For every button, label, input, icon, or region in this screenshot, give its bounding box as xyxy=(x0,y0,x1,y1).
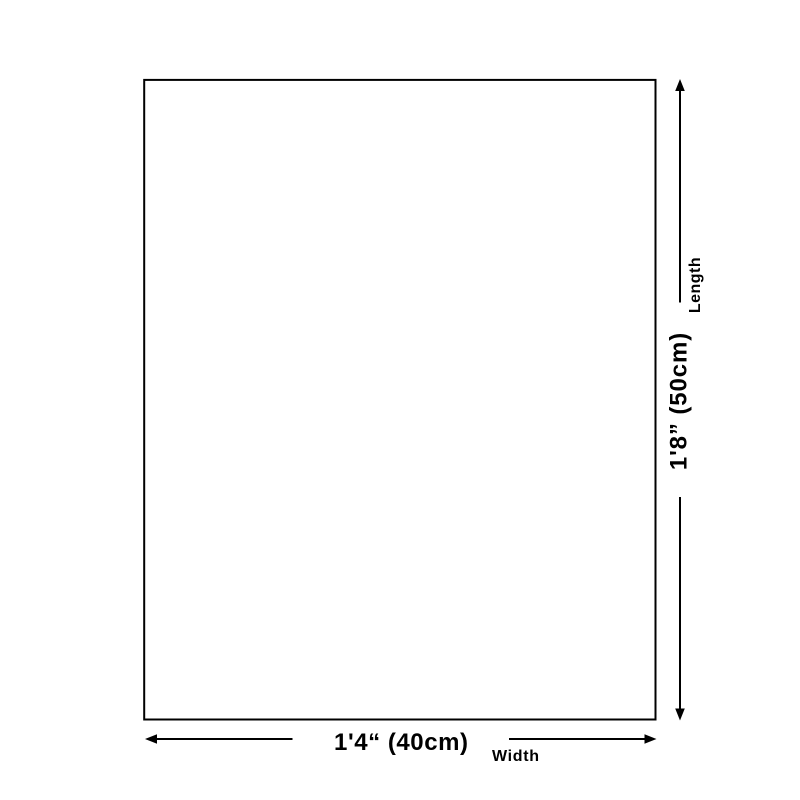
svg-text:Width: Width xyxy=(492,748,540,765)
svg-text:1'4“ (40cm): 1'4“ (40cm) xyxy=(334,729,469,756)
svg-text:1'8” (50cm): 1'8” (50cm) xyxy=(665,332,692,470)
svg-text:Length: Length xyxy=(687,257,704,313)
